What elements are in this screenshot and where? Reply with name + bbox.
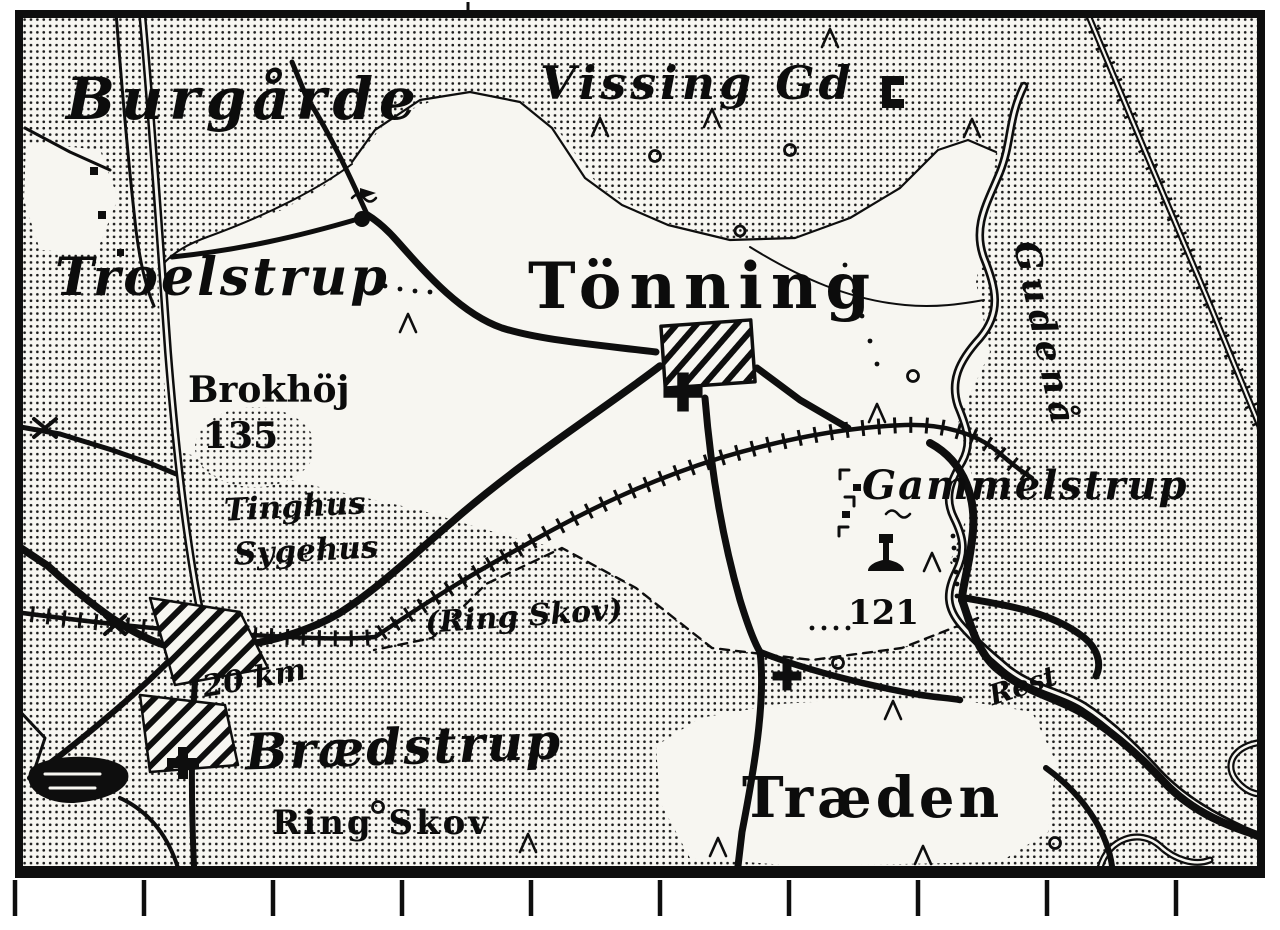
place-label-tinghus: Tinghus bbox=[223, 488, 366, 526]
vissing-gd-building-symbol bbox=[882, 76, 904, 108]
place-label-sygehus: Sygehus bbox=[233, 532, 379, 571]
railway-line-northeast bbox=[1087, 12, 1262, 432]
map-canvas: Burgårde Vissing Gd Troelstrup Tönning B… bbox=[0, 0, 1280, 930]
place-label-traeden: Træden bbox=[742, 770, 1003, 826]
place-label-braedstrup: Brædstrup bbox=[244, 716, 563, 777]
place-label-burgarde: Burgårde bbox=[66, 70, 422, 128]
place-label-tonning: Tönning bbox=[528, 255, 878, 319]
forest-label-ring-skov: Ring Skov bbox=[272, 806, 491, 840]
elevation-label-121: 121 bbox=[848, 596, 919, 630]
place-label-brokhoj: Brokhöj bbox=[188, 372, 350, 408]
elevation-label-135: 135 bbox=[203, 418, 278, 454]
lake-symbol bbox=[28, 757, 128, 803]
place-label-vissing-gd: Vissing Gd bbox=[540, 60, 855, 106]
place-label-gammelstrup: Gammelstrup bbox=[862, 466, 1189, 506]
place-label-troelstrup: Troelstrup bbox=[55, 252, 390, 304]
